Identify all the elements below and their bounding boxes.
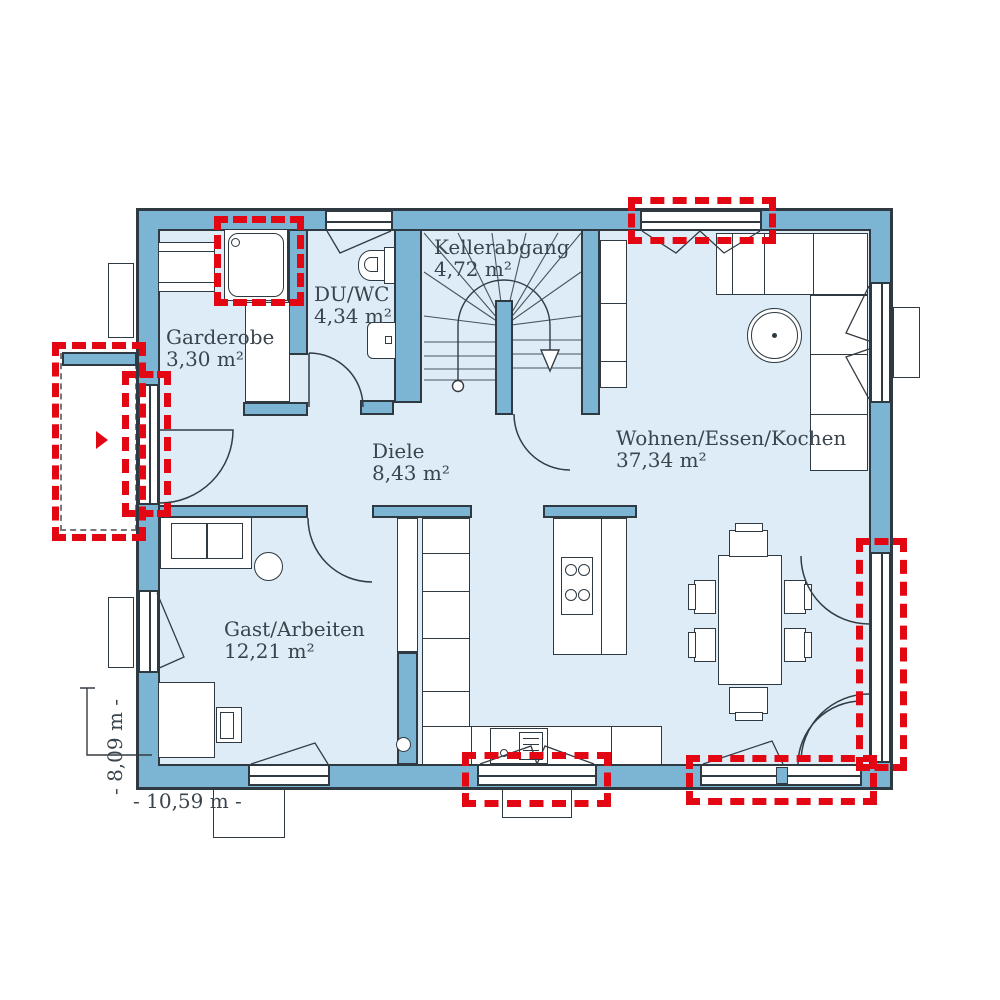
room-area: 3,30 m² <box>166 348 274 370</box>
room-label-wohnen: Wohnen/Essen/Kochen 37,34 m² <box>616 427 846 472</box>
room-name: Diele <box>372 440 450 462</box>
highlight-terrace-window-right[interactable] <box>856 538 907 771</box>
entrance-arrow-icon <box>96 431 108 449</box>
room-name: Kellerabgang <box>434 236 570 258</box>
room-label-gast: Gast/Arbeiten 12,21 m² <box>224 618 365 663</box>
room-label-duwc: DU/WC 4,34 m² <box>314 283 392 328</box>
highlight-terrace-door-bottom[interactable] <box>686 755 877 805</box>
room-name: Garderobe <box>166 326 274 348</box>
stair-spine-wall <box>495 300 513 415</box>
room-area: 4,34 m² <box>314 305 392 327</box>
door-swings <box>160 353 869 765</box>
highlight-window-top[interactable] <box>628 197 776 244</box>
room-area: 4,72 m² <box>434 258 570 280</box>
room-label-kellerabgang: Kellerabgang 4,72 m² <box>434 236 570 281</box>
highlight-kitchen-window[interactable] <box>462 752 611 807</box>
highlight-shower[interactable] <box>214 216 304 306</box>
room-name: DU/WC <box>314 283 392 305</box>
room-area: 8,43 m² <box>372 462 450 484</box>
diele-living-door-swing <box>514 414 570 470</box>
room-area: 12,21 m² <box>224 640 365 662</box>
highlight-entrance-door[interactable] <box>122 371 171 517</box>
room-name: Gast/Arbeiten <box>224 618 365 640</box>
dimension-height: - 8,09 m - <box>103 687 127 807</box>
room-name: Wohnen/Essen/Kochen <box>616 427 846 449</box>
gast-door-swing <box>308 518 372 582</box>
floor-plan: Garderobe 3,30 m² DU/WC 4,34 m² Kellerab… <box>0 0 1000 1000</box>
room-area: 37,34 m² <box>616 449 846 471</box>
room-label-diele: Diele 8,43 m² <box>372 440 450 485</box>
duwc-door-swing <box>309 353 363 407</box>
dimension-width: - 10,59 m - <box>133 789 242 813</box>
room-label-garderobe: Garderobe 3,30 m² <box>166 326 274 371</box>
